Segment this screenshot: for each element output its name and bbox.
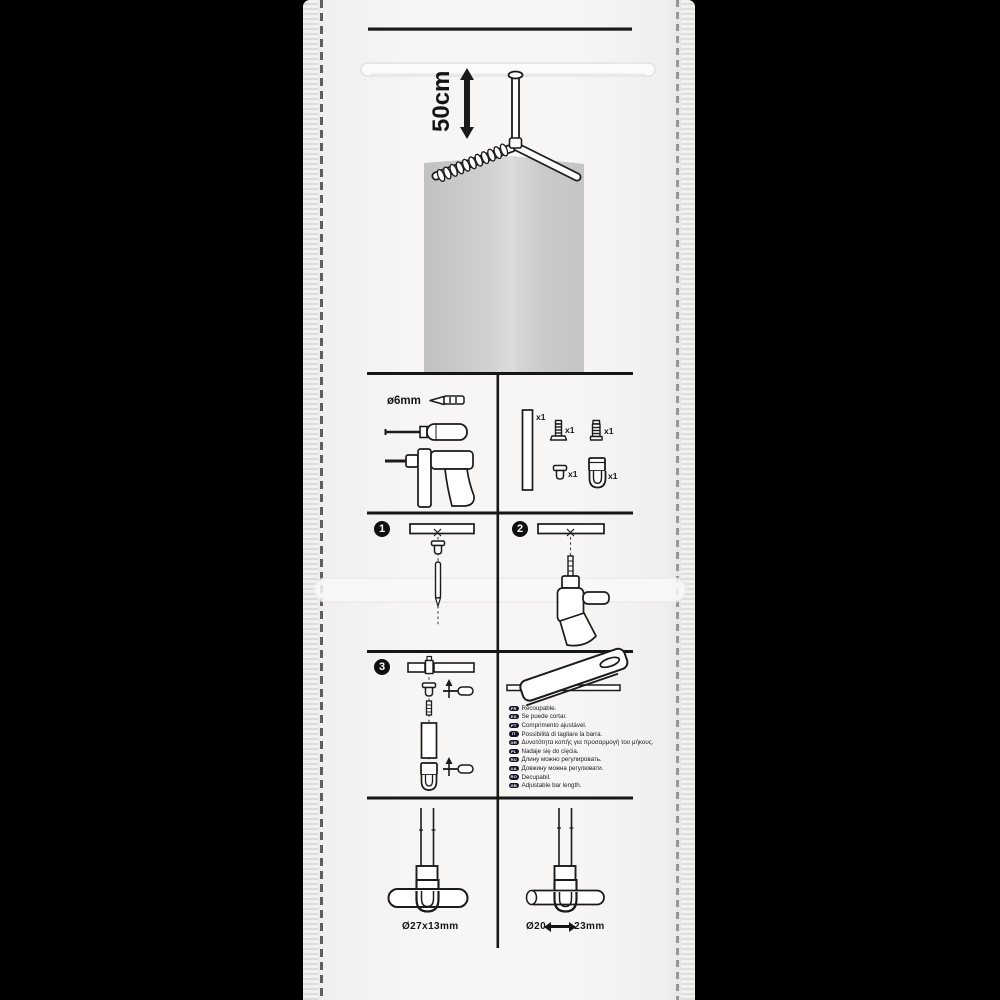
tube-icon [422, 723, 437, 758]
language-row: ITPossibilità di tagliare la barra. [509, 730, 649, 739]
hook-bracket-small-icon [421, 763, 437, 790]
top-rule [368, 28, 632, 31]
step3-diagram [408, 657, 474, 793]
step-2-badge: 2 [512, 521, 528, 537]
language-text: Recoupable. [522, 705, 557, 712]
hacksaw-icon [518, 647, 630, 706]
power-drill-icon [385, 449, 474, 507]
instruction-lineart [0, 0, 1000, 1000]
language-text: Decupabil. [522, 774, 551, 781]
up-arrow-icon [446, 757, 453, 776]
language-badge: ES [509, 714, 519, 719]
language-text: Довжину можна регулювати. [522, 765, 604, 772]
language-badge: RO [509, 774, 519, 779]
round-bar-size-label: Ø20 23mm [526, 921, 605, 932]
round-bar-mount-diagram [527, 808, 605, 912]
language-badge: PL [509, 749, 519, 754]
pencil-icon [436, 562, 441, 606]
ceiling-support-icon [509, 72, 523, 149]
language-row: ESSe puede cortar. [509, 713, 649, 722]
language-badge: FR [509, 706, 519, 711]
flat-bar-size-label: Ø27x13mm [402, 921, 459, 932]
screwdriver-small-icon [443, 687, 473, 695]
screwdriver-small-icon [443, 765, 473, 773]
language-badge: GB [509, 783, 519, 788]
drill-diameter-label: ø6mm [387, 395, 421, 407]
language-row: RUДлину можно регулировать. [509, 756, 649, 765]
language-badge: PT [509, 723, 519, 728]
drill-up-icon [558, 556, 610, 646]
language-badge: GR [509, 740, 519, 745]
language-list: FRRecoupable.ESSe puede cortar.PTComprim… [509, 704, 649, 790]
round-bar-icon [527, 891, 604, 905]
language-text: Длину можно регулировать. [522, 756, 602, 763]
language-text: Possibilità di tagliare la barra. [522, 731, 603, 738]
language-text: Comprimento ajustável. [522, 722, 587, 729]
round-bar-max: 23mm [574, 921, 605, 932]
qty-hook-bracket: x1 [608, 471, 617, 481]
flat-bar-icon [389, 889, 468, 907]
language-row: UAДовжину можна регулювати. [509, 764, 649, 773]
mid-emboss [314, 578, 686, 602]
language-badge: RU [509, 757, 519, 762]
language-row: FRRecoupable. [509, 704, 649, 713]
range-arrow-icon [551, 925, 569, 928]
height-arrow-icon [460, 68, 474, 139]
up-arrow-icon [446, 679, 453, 698]
corner-walls-icon [424, 156, 584, 372]
language-text: Adjustable bar length. [522, 782, 582, 789]
qty-wall-plug: x1 [604, 426, 613, 436]
round-bar-min: Ø20 [526, 921, 546, 932]
language-text: Δυνατότητα κοπής για προσαρμογή του μήκο… [522, 739, 654, 746]
language-text: Se puede cortar. [522, 713, 567, 720]
qty-bar: x1 [536, 412, 545, 422]
language-text: Nadaje się do cięcia. [522, 748, 579, 755]
drill-bit-icon [430, 396, 464, 405]
step1-diagram [410, 524, 474, 626]
language-row: PTComprimento ajustável. [509, 721, 649, 730]
language-row: RODecupabil. [509, 773, 649, 782]
part-endcap-icon [554, 466, 567, 480]
part-bar-icon [523, 410, 533, 490]
step-3-badge: 3 [374, 659, 390, 675]
step-1-badge: 1 [374, 521, 390, 537]
language-badge: UA [509, 766, 519, 771]
scene: 50cm ø6mm x1 x1 x1 x1 x1 1 2 3 FRRecoupa… [0, 0, 1000, 1000]
qty-screw: x1 [565, 425, 574, 435]
part-bracket-icon [589, 458, 606, 488]
qty-end-cap: x1 [568, 469, 577, 479]
screwdriver-icon [385, 424, 467, 440]
height-dimension-label: 50cm [428, 76, 458, 132]
language-row: PLNadaje się do cięcia. [509, 747, 649, 756]
part-wallplug-icon [591, 421, 603, 441]
language-badge: IT [509, 731, 519, 736]
screw-small-icon [427, 701, 432, 715]
language-row: GBAdjustable bar length. [509, 781, 649, 790]
flat-bar-mount-diagram [389, 808, 468, 912]
language-row: GRΔυνατότητα κοπής για προσαρμογή του μή… [509, 738, 649, 747]
